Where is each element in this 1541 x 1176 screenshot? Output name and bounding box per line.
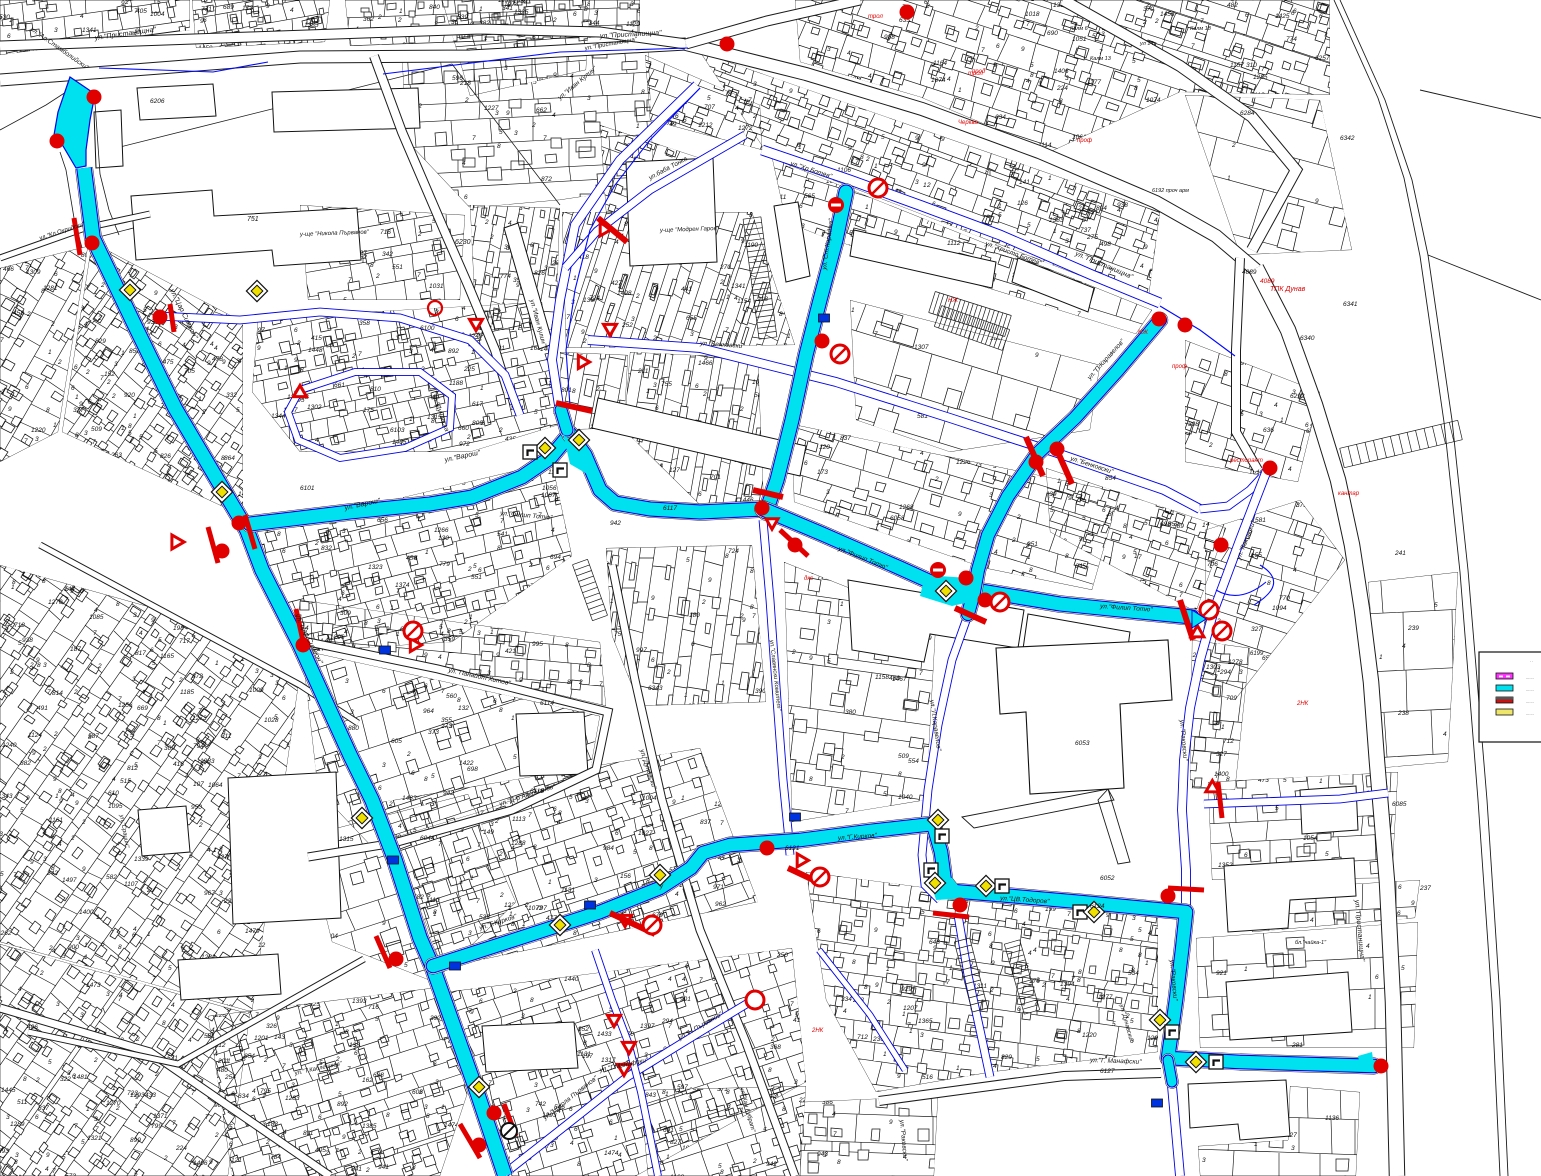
svg-text:3: 3 [291,1082,295,1089]
svg-text:8: 8 [779,311,783,318]
svg-text:2: 2 [528,562,533,569]
svg-text:5: 5 [679,1126,683,1133]
svg-text:6: 6 [158,341,162,348]
svg-text:6: 6 [569,1106,573,1113]
svg-text:241: 241 [1394,550,1406,557]
svg-text:107: 107 [193,781,204,788]
svg-text:1474: 1474 [604,1150,619,1157]
svg-text:8: 8 [345,1029,349,1036]
svg-text:458: 458 [13,310,24,317]
svg-text:6192 проч арм: 6192 проч арм [1152,188,1189,194]
svg-text:311: 311 [221,733,232,740]
svg-text:648: 648 [929,939,940,946]
svg-text:9: 9 [809,655,813,662]
svg-text:3: 3 [477,630,481,637]
svg-text:755: 755 [661,381,672,388]
svg-text:3: 3 [587,95,591,102]
svg-text:7: 7 [441,688,445,695]
svg-text:3: 3 [132,676,136,683]
svg-text:6: 6 [1319,13,1323,20]
svg-text:1: 1 [1280,417,1284,424]
svg-text:6: 6 [455,316,459,323]
svg-text:4: 4 [185,773,189,780]
svg-text:7: 7 [725,327,729,334]
svg-text:6: 6 [411,770,415,777]
svg-text:6: 6 [229,1141,233,1148]
svg-text:2: 2 [154,1071,159,1078]
svg-text:8: 8 [426,1113,430,1120]
svg-text:3: 3 [727,1103,731,1110]
svg-text:7: 7 [25,265,29,272]
svg-text:2: 2 [752,1158,757,1165]
svg-text:9: 9 [874,927,878,934]
svg-text:7: 7 [476,898,480,905]
svg-text:7: 7 [2,633,6,640]
svg-text:2: 2 [578,679,583,686]
svg-text:655: 655 [686,315,697,322]
svg-text:2: 2 [595,386,600,393]
svg-text:1406: 1406 [193,1160,208,1167]
svg-text:5: 5 [1275,805,1279,812]
svg-text:6: 6 [996,43,1000,50]
svg-text:1085: 1085 [89,614,104,621]
svg-text:1: 1 [634,839,638,846]
svg-text:6: 6 [1398,884,1402,891]
svg-text:533: 533 [479,914,490,921]
svg-text:6: 6 [231,1091,235,1098]
svg-text:9: 9 [276,1015,280,1022]
svg-text:9: 9 [941,136,945,143]
svg-text:4: 4 [139,630,143,637]
svg-text:840: 840 [429,4,440,11]
svg-text:2: 2 [296,340,301,347]
svg-text:1: 1 [490,629,494,636]
svg-text:9: 9 [1144,244,1148,251]
svg-text:1: 1 [636,123,640,130]
svg-text:6342: 6342 [1340,135,1355,142]
svg-text:8: 8 [782,1106,786,1113]
svg-text:511: 511 [17,1099,28,1106]
svg-text:2: 2 [26,311,31,318]
svg-text:5: 5 [0,871,4,878]
svg-text:3: 3 [1202,1157,1206,1164]
svg-text:1074: 1074 [931,77,946,84]
svg-text:2: 2 [35,1077,40,1084]
svg-text:6292: 6292 [1290,393,1305,400]
svg-text:4: 4 [994,549,998,556]
svg-text:4: 4 [315,437,319,444]
svg-text:2: 2 [324,1150,329,1157]
svg-text:1: 1 [1319,778,1323,785]
svg-text:6: 6 [660,1160,664,1167]
svg-text:293: 293 [0,1148,9,1155]
svg-text:1240: 1240 [2,742,17,749]
svg-text:7: 7 [1067,911,1071,918]
svg-text:4: 4 [668,976,672,983]
svg-text:162: 162 [362,1077,373,1084]
svg-text:3: 3 [1259,411,1263,418]
svg-text:7: 7 [417,516,421,523]
svg-text:6: 6 [74,364,78,371]
svg-text:3: 3 [594,877,598,884]
svg-text:688: 688 [373,1072,384,1079]
svg-text:1: 1 [1027,554,1031,561]
svg-text:3: 3 [409,348,413,355]
svg-text:4: 4 [570,1140,574,1147]
svg-text:2: 2 [85,369,90,376]
svg-text:6: 6 [354,1050,358,1057]
svg-text:1315: 1315 [339,836,354,843]
svg-text:1220: 1220 [1082,1032,1097,1039]
svg-text:892: 892 [448,348,459,355]
svg-text:4: 4 [1066,996,1070,1003]
svg-text:7: 7 [92,439,96,446]
svg-text:3: 3 [827,46,831,53]
svg-text:1498: 1498 [617,290,632,297]
svg-text:8: 8 [51,865,55,872]
svg-text:8: 8 [118,944,122,951]
svg-text:8: 8 [558,810,562,817]
svg-text:155: 155 [1251,552,1262,559]
svg-text:8: 8 [412,1164,416,1171]
svg-text:1: 1 [1221,724,1225,731]
svg-text:8: 8 [1065,553,1069,560]
svg-text:4: 4 [1366,943,1370,950]
svg-text:5: 5 [154,448,158,455]
svg-text:389: 389 [1173,523,1184,530]
svg-text:9: 9 [506,110,510,117]
svg-text:7: 7 [833,1131,837,1138]
svg-text:1094: 1094 [1272,605,1287,612]
svg-text:2: 2 [263,1057,268,1064]
svg-text:9: 9 [993,62,997,69]
svg-text:5: 5 [1401,965,1405,972]
svg-text:1: 1 [798,144,802,151]
svg-text:3: 3 [35,436,39,443]
svg-text:9: 9 [889,1119,893,1126]
svg-text:5: 5 [1144,520,1148,527]
svg-text:551: 551 [471,574,482,581]
svg-text:4: 4 [570,73,574,80]
svg-text:9: 9 [875,982,879,989]
svg-text:1220: 1220 [31,427,46,434]
svg-text:724: 724 [728,548,739,555]
svg-text:6: 6 [1179,582,1183,589]
svg-text:7: 7 [543,135,547,142]
svg-text:997: 997 [636,647,647,654]
svg-text:1: 1 [399,8,403,15]
svg-text:1383: 1383 [1049,217,1064,224]
svg-text:4: 4 [1148,930,1152,937]
svg-text:1281: 1281 [43,285,58,292]
svg-text:1185: 1185 [180,689,194,696]
svg-text:4: 4 [430,347,434,354]
svg-text:.......: ....... [1526,711,1534,716]
svg-text:2: 2 [739,406,744,413]
svg-text:3: 3 [73,947,77,954]
svg-text:6: 6 [479,998,483,1005]
svg-text:4: 4 [1022,921,1026,928]
svg-text:1: 1 [1031,186,1035,193]
svg-text:964: 964 [423,708,434,715]
svg-text:3: 3 [133,612,137,619]
svg-text:1: 1 [480,385,484,392]
svg-text:3: 3 [106,991,110,998]
svg-text:6: 6 [1375,974,1379,981]
svg-text:3: 3 [43,856,47,863]
svg-text:7: 7 [282,1063,286,1070]
svg-text:5: 5 [130,732,134,739]
svg-text:3: 3 [219,890,223,897]
svg-text:742: 742 [535,1101,546,1108]
svg-text:2: 2 [1041,982,1046,989]
svg-text:1283: 1283 [285,1095,300,1102]
svg-text:6: 6 [464,194,468,201]
svg-text:1: 1 [909,1028,913,1035]
svg-text:3: 3 [690,331,694,338]
svg-text:5: 5 [1201,0,1205,3]
svg-text:2: 2 [365,1167,370,1174]
svg-text:3: 3 [1291,1145,1295,1152]
svg-text:1031: 1031 [429,283,444,290]
svg-text:1064: 1064 [208,782,223,789]
svg-text:5: 5 [375,1016,379,1023]
svg-text:327: 327 [73,407,84,414]
svg-text:1: 1 [147,931,151,938]
svg-text:1339: 1339 [134,856,149,863]
svg-text:7: 7 [134,8,138,15]
svg-text:1: 1 [617,131,621,138]
svg-text:6127: 6127 [1100,1068,1115,1075]
svg-text:2: 2 [791,649,796,656]
svg-text:149: 149 [483,829,494,836]
svg-text:829: 829 [95,338,106,345]
svg-text:2: 2 [1231,142,1236,149]
svg-text:8: 8 [567,679,571,686]
svg-text:4: 4 [552,112,556,119]
svg-text:7: 7 [335,1148,339,1155]
svg-text:3: 3 [794,1079,798,1086]
svg-text:5: 5 [1325,851,1329,858]
svg-text:1113: 1113 [512,816,526,823]
svg-text:3: 3 [457,897,461,904]
svg-text:4: 4 [1028,950,1032,957]
svg-text:5: 5 [998,212,1002,219]
svg-text:1112: 1112 [947,240,961,247]
svg-text:942: 942 [443,790,454,797]
svg-text:9: 9 [1035,352,1039,359]
svg-text:716: 716 [380,229,391,236]
svg-text:6: 6 [1017,1006,1021,1013]
svg-text:1: 1 [610,598,614,605]
svg-text:3: 3 [630,1,634,8]
svg-text:9: 9 [257,345,261,352]
svg-text:1120: 1120 [626,21,640,28]
svg-text:7: 7 [1060,231,1064,238]
svg-text:1: 1 [1368,994,1372,1001]
svg-text:1201: 1201 [254,1035,269,1042]
svg-text:1: 1 [425,549,429,556]
svg-text:1285: 1285 [1253,74,1268,81]
svg-text:1: 1 [787,333,791,340]
svg-text:7: 7 [1200,18,1204,25]
svg-text:6: 6 [376,604,380,611]
svg-text:4089: 4089 [1260,278,1275,285]
svg-text:491: 491 [37,705,48,712]
svg-text:427: 427 [611,280,622,287]
svg-text:1: 1 [1053,228,1057,235]
svg-text:237: 237 [1419,885,1431,892]
svg-text:5: 5 [1010,170,1014,177]
svg-text:7: 7 [74,1123,78,1130]
svg-text:5: 5 [534,409,538,416]
svg-text:8: 8 [364,620,368,627]
svg-text:1154: 1154 [737,298,751,305]
svg-text:7: 7 [396,588,400,595]
svg-text:1027: 1027 [638,830,653,837]
svg-text:380: 380 [845,709,856,716]
svg-text:971: 971 [713,884,724,891]
svg-text:9: 9 [266,3,270,10]
svg-text:4: 4 [207,847,211,854]
svg-text:4: 4 [1293,567,1297,574]
svg-text:1262: 1262 [0,930,12,937]
svg-text:9: 9 [30,859,34,866]
svg-text:942: 942 [610,520,621,527]
svg-text:737: 737 [1080,227,1091,234]
svg-text:1440: 1440 [564,976,579,983]
svg-text:3: 3 [653,382,657,389]
svg-text:1385: 1385 [304,22,319,29]
svg-text:2: 2 [314,540,319,547]
svg-text:Калм 13: Калм 13 [1090,56,1112,62]
svg-text:770: 770 [1279,595,1290,602]
svg-text:7: 7 [220,719,224,726]
svg-text:2: 2 [480,420,485,427]
svg-text:560: 560 [446,693,457,700]
svg-text:8: 8 [533,844,537,851]
svg-text:326: 326 [266,1023,277,1030]
svg-text:.......: ....... [1526,687,1534,692]
svg-text:2: 2 [100,282,105,289]
svg-text:281: 281 [1291,1042,1303,1049]
svg-text:6: 6 [424,683,428,690]
svg-text:.......: ....... [1526,675,1534,680]
svg-text:8: 8 [1119,947,1123,954]
svg-text:3: 3 [544,265,548,272]
svg-text:4: 4 [252,1088,256,1095]
svg-text:6101: 6101 [300,485,315,492]
svg-text:9: 9 [991,960,995,967]
svg-text:9: 9 [672,799,676,806]
svg-text:482: 482 [1227,2,1238,9]
svg-text:5: 5 [157,0,161,6]
svg-text:362: 362 [363,16,374,23]
svg-text:8: 8 [219,846,223,853]
svg-text:5: 5 [236,407,240,414]
svg-text:7: 7 [599,681,603,688]
svg-text:7: 7 [1179,592,1183,599]
svg-text:392: 392 [430,1015,441,1022]
svg-text:2: 2 [178,677,183,684]
svg-text:7: 7 [95,1126,99,1133]
svg-text:1283: 1283 [200,758,215,765]
svg-text:5: 5 [686,557,690,564]
svg-text:1: 1 [1057,478,1061,485]
svg-text:6121: 6121 [785,845,800,852]
svg-text:8: 8 [985,169,989,176]
svg-text:3: 3 [826,489,830,496]
svg-text:1: 1 [409,416,413,423]
svg-text:3: 3 [56,1001,60,1008]
svg-text:6124: 6124 [1090,903,1105,910]
svg-text:1: 1 [1031,0,1035,3]
svg-text:7: 7 [226,855,230,862]
svg-text:9: 9 [46,1152,50,1159]
svg-text:8: 8 [511,921,515,928]
svg-text:943: 943 [817,1151,828,1158]
svg-text:3: 3 [80,1012,84,1019]
svg-text:3: 3 [989,492,993,499]
svg-text:811: 811 [303,1130,314,1137]
svg-text:1: 1 [215,660,219,667]
svg-text:2: 2 [466,434,471,441]
svg-text:694: 694 [550,554,561,561]
svg-text:582: 582 [106,874,117,881]
svg-text:810: 810 [370,386,381,393]
svg-text:1: 1 [11,584,15,591]
svg-text:8: 8 [42,578,46,585]
svg-text:4: 4 [338,596,342,603]
svg-text:2: 2 [0,389,5,396]
svg-text:1: 1 [134,1103,138,1110]
svg-text:8: 8 [1029,567,1033,574]
svg-text:7: 7 [347,1066,351,1073]
svg-text:1107: 1107 [124,881,138,888]
svg-text:9: 9 [1021,46,1025,53]
svg-text:2: 2 [163,1155,168,1162]
svg-text:7: 7 [911,988,915,995]
svg-text:332: 332 [226,392,237,399]
svg-text:3: 3 [1132,915,1136,922]
svg-text:9: 9 [708,577,712,584]
svg-text:6: 6 [685,963,689,970]
svg-text:8: 8 [530,997,534,1004]
svg-text:4: 4 [1033,947,1037,954]
svg-text:8: 8 [860,154,864,161]
svg-text:1056: 1056 [542,485,557,492]
svg-text:1466: 1466 [698,360,713,367]
svg-text:6199: 6199 [1250,651,1264,657]
svg-text:4: 4 [290,7,294,14]
svg-text:7: 7 [172,1120,176,1127]
svg-text:8: 8 [300,367,304,374]
svg-text:880: 880 [348,725,359,732]
svg-text:2: 2 [489,234,494,241]
svg-text:8: 8 [565,642,569,649]
svg-text:1: 1 [681,795,685,802]
svg-text:4: 4 [843,1008,847,1015]
svg-text:1393: 1393 [352,998,367,1005]
svg-text:1054: 1054 [1303,835,1318,842]
svg-text:565: 565 [804,193,815,200]
svg-text:6: 6 [817,928,821,935]
svg-text:606: 606 [412,1089,423,1096]
svg-text:2: 2 [719,279,724,286]
svg-text:6: 6 [988,931,992,938]
svg-text:3: 3 [435,1079,439,1086]
svg-text:1: 1 [94,745,98,752]
